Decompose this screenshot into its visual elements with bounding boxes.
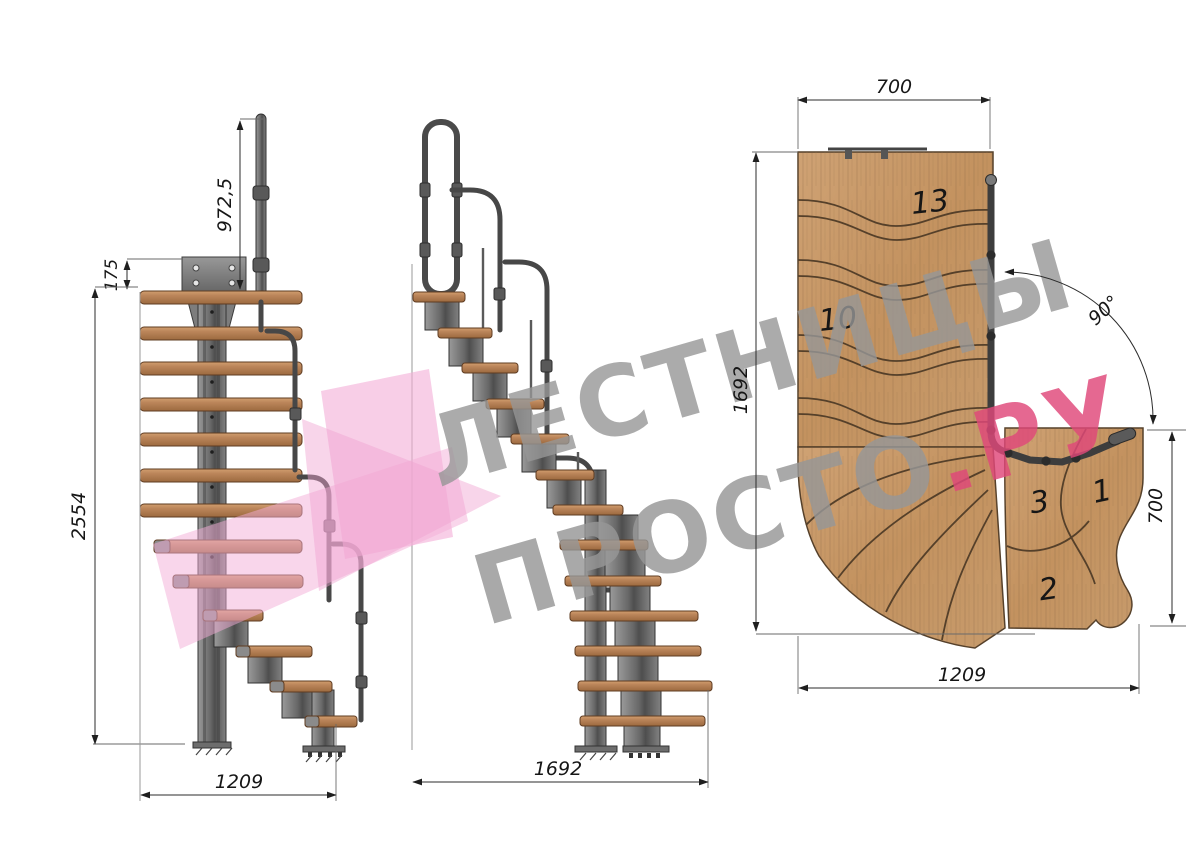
- dim-plan-right-width: 700: [1145, 488, 1167, 524]
- dim-plan-bottom-width: 1209: [938, 664, 986, 686]
- side-top-handrail: [420, 122, 462, 294]
- dim-total-height: 2554: [68, 492, 90, 540]
- side-ground-hatch: [580, 753, 616, 760]
- dim-side-length: 1692: [534, 758, 582, 780]
- side-dimensions: 1692: [413, 690, 708, 788]
- dim-top-offset: 175: [102, 259, 122, 291]
- step-label-13: 13: [909, 183, 951, 222]
- dim-handrail-height: 972,5: [214, 178, 236, 232]
- staircase-drawing-page: 972,5 175 2554 1209: [0, 0, 1200, 849]
- front-handrail-post: [253, 114, 269, 304]
- dim-plan-top-width: 700: [876, 76, 912, 98]
- drawing-canvas: 972,5 175 2554 1209: [0, 0, 1200, 849]
- dim-plan-left-length: 1692: [730, 366, 752, 414]
- dim-front-width: 1209: [215, 771, 263, 793]
